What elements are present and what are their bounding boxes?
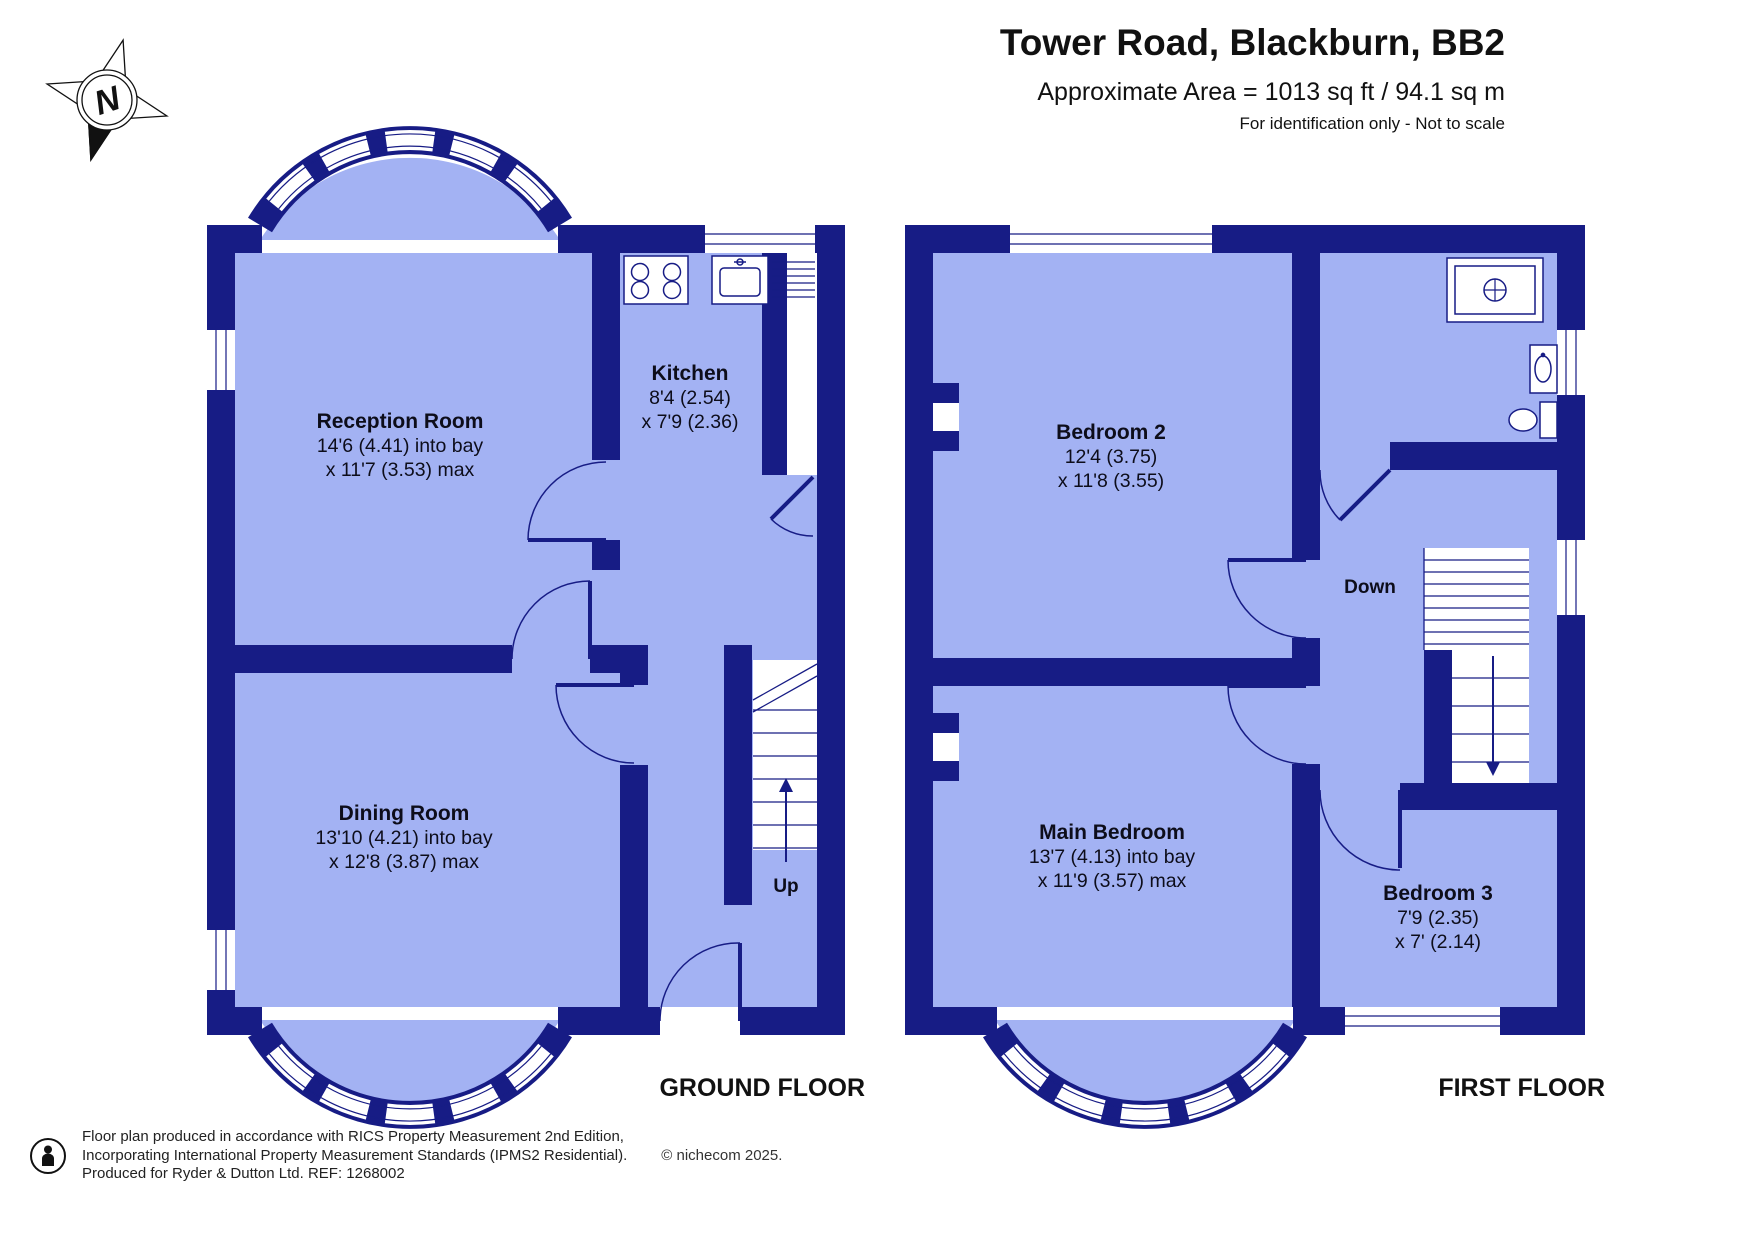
- room-label-kitchen: Kitchen 8'4 (2.54) x 7'9 (2.36): [510, 362, 870, 434]
- first-floor-label: FIRST FLOOR: [1285, 1074, 1605, 1103]
- floorplan-drawing: N: [0, 0, 1755, 1241]
- hob-icon: [624, 256, 688, 304]
- window: [207, 330, 235, 390]
- footer-text: Floor plan produced in accordance with R…: [82, 1128, 782, 1184]
- footer: Floor plan produced in accordance with R…: [28, 1128, 782, 1184]
- bedroom2-window: [1010, 225, 1212, 253]
- shower-tray-icon: [1447, 258, 1543, 322]
- footer-copyright: © nichecom 2025.: [661, 1147, 782, 1166]
- ground-floor-plan: [207, 134, 845, 1121]
- footer-line3: Produced for Ryder & Dutton Ltd. REF: 12…: [82, 1165, 782, 1184]
- approximate-area: Approximate Area = 1013 sq ft / 94.1 sq …: [1000, 78, 1505, 106]
- stairs-up-label: Up: [746, 876, 826, 898]
- room-label-dining: Dining Room 13'10 (4.21) into bay x 12'8…: [224, 802, 584, 874]
- page-title: Tower Road, Blackburn, BB2: [1000, 22, 1505, 64]
- compass-rose: N: [47, 40, 167, 160]
- first-floor-plan: [905, 225, 1585, 1121]
- identification-note: For identification only - Not to scale: [1000, 114, 1505, 133]
- footer-line2: Incorporating International Property Mea…: [82, 1147, 627, 1166]
- room-label-bedroom2: Bedroom 2 12'4 (3.75) x 11'8 (3.55): [931, 421, 1291, 493]
- footer-line1: Floor plan produced in accordance with R…: [82, 1128, 782, 1147]
- ground-floor-label: GROUND FLOOR: [545, 1074, 865, 1103]
- basin-icon: [1530, 345, 1557, 393]
- person-icon: [28, 1136, 68, 1176]
- plan-header: Tower Road, Blackburn, BB2 Approximate A…: [1000, 22, 1505, 133]
- first-stairwell-upper: [1424, 548, 1529, 650]
- window: [207, 930, 235, 990]
- stairs-down-label: Down: [1300, 577, 1440, 599]
- floorplan-page: N: [0, 0, 1755, 1241]
- sink-icon: [712, 256, 768, 304]
- room-label-main-bedroom: Main Bedroom 13'7 (4.13) into bay x 11'9…: [932, 821, 1292, 893]
- landing-window: [1557, 540, 1585, 615]
- room-label-bedroom3: Bedroom 3 7'9 (2.35) x 7' (2.14): [1258, 882, 1618, 954]
- kitchen-window: [705, 225, 815, 253]
- shower-room-window: [1557, 330, 1585, 395]
- bedroom3-window: [1345, 1007, 1500, 1035]
